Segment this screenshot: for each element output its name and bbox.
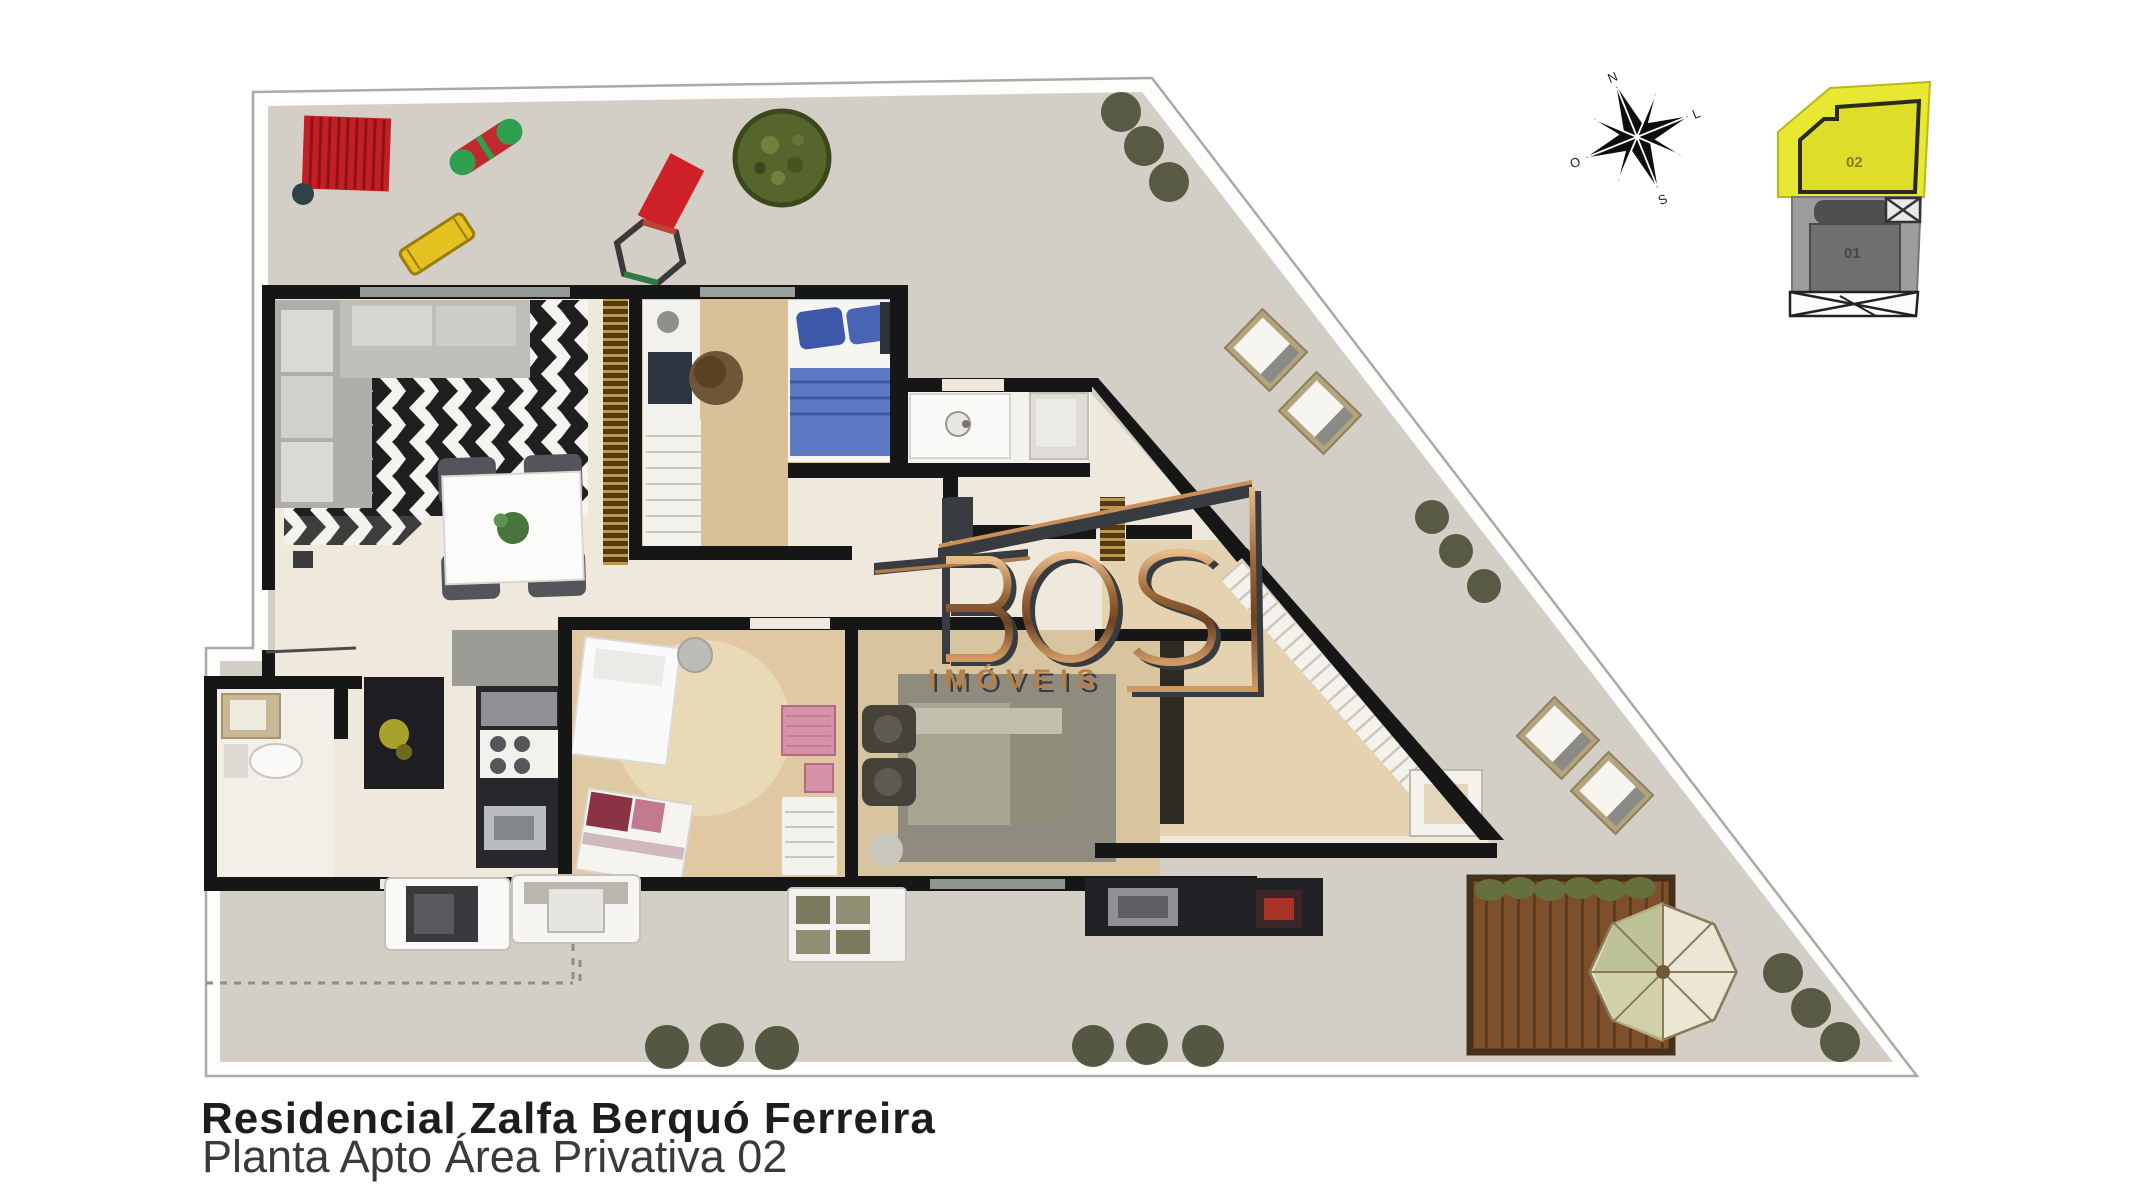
svg-text:02: 02: [1846, 154, 1863, 171]
svg-text:01: 01: [1844, 245, 1861, 262]
svg-text:IMÓVEIS: IMÓVEIS: [928, 663, 1104, 694]
svg-text:Planta Apto Área Privativa 02: Planta Apto Área Privativa 02: [202, 1131, 787, 1182]
